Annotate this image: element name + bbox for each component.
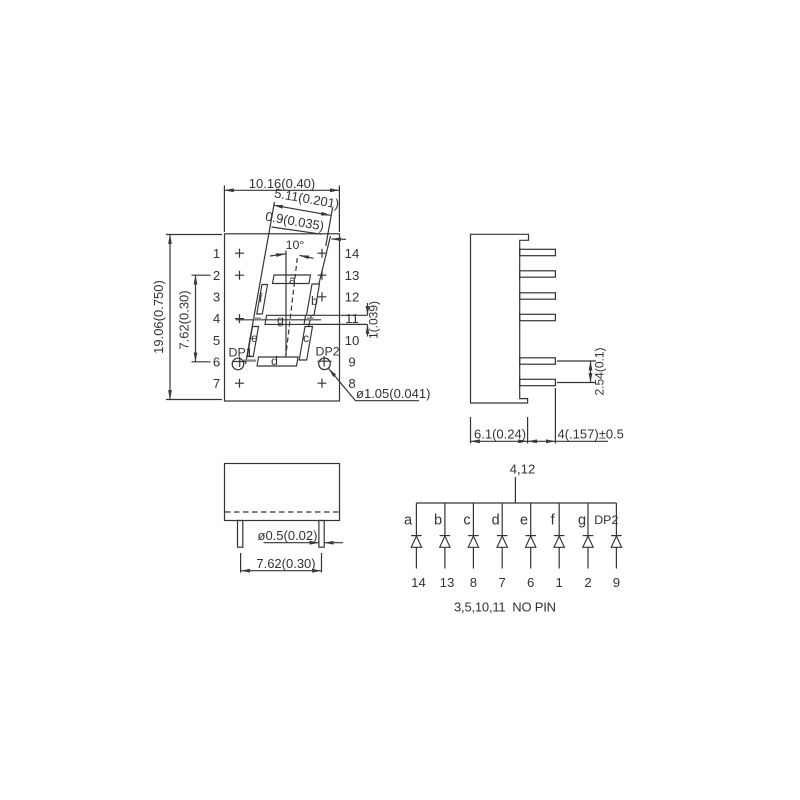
svg-text:12: 12 xyxy=(345,289,360,304)
svg-text:4(.157)±0.5: 4(.157)±0.5 xyxy=(558,427,624,442)
svg-text:13: 13 xyxy=(440,575,455,590)
svg-text:7.62(0.30): 7.62(0.30) xyxy=(177,290,192,349)
svg-text:1: 1 xyxy=(556,575,563,590)
svg-text:3: 3 xyxy=(213,289,220,304)
svg-text:6.1(0.24): 6.1(0.24) xyxy=(474,427,526,442)
svg-text:14: 14 xyxy=(345,246,360,261)
svg-text:1(.039): 1(.039) xyxy=(367,301,381,339)
svg-text:10°: 10° xyxy=(286,238,305,252)
svg-text:6: 6 xyxy=(527,575,534,590)
svg-text:d: d xyxy=(271,354,278,368)
svg-text:19.06(0.750): 19.06(0.750) xyxy=(151,280,166,354)
svg-text:e: e xyxy=(520,513,528,529)
svg-text:b: b xyxy=(311,294,318,308)
svg-text:1: 1 xyxy=(213,246,220,261)
svg-text:DP2: DP2 xyxy=(594,513,618,527)
svg-text:7: 7 xyxy=(499,575,506,590)
svg-text:DP2: DP2 xyxy=(316,345,340,359)
svg-text:2.54(0.1): 2.54(0.1) xyxy=(593,347,607,395)
svg-text:10: 10 xyxy=(345,333,360,348)
svg-text:e: e xyxy=(251,331,258,345)
svg-text:g: g xyxy=(578,513,586,529)
svg-text:9: 9 xyxy=(613,575,620,590)
svg-text:ø1.05(0.041): ø1.05(0.041) xyxy=(356,386,430,401)
svg-text:7: 7 xyxy=(213,376,220,391)
svg-text:f: f xyxy=(259,291,263,305)
svg-text:c: c xyxy=(463,513,470,529)
svg-text:b: b xyxy=(434,513,442,529)
svg-text:a: a xyxy=(404,513,413,529)
svg-text:6: 6 xyxy=(213,354,220,369)
svg-text:4,12: 4,12 xyxy=(510,461,536,476)
svg-text:14: 14 xyxy=(411,575,426,590)
svg-text:2: 2 xyxy=(584,575,591,590)
svg-text:ø0.5(0.02): ø0.5(0.02) xyxy=(258,528,318,543)
svg-text:13: 13 xyxy=(345,268,360,283)
svg-text:f: f xyxy=(551,513,556,529)
svg-text:8: 8 xyxy=(470,575,477,590)
svg-text:2: 2 xyxy=(213,268,220,283)
svg-text:8: 8 xyxy=(348,376,355,391)
svg-text:DP1: DP1 xyxy=(229,346,253,360)
svg-text:5: 5 xyxy=(213,333,220,348)
svg-text:d: d xyxy=(492,513,500,529)
svg-text:3,5,10,11 NO PIN: 3,5,10,11 NO PIN xyxy=(454,600,556,615)
svg-text:7.62(0.30): 7.62(0.30) xyxy=(256,556,315,571)
svg-text:4: 4 xyxy=(213,311,220,326)
svg-text:c: c xyxy=(303,331,309,345)
svg-text:9: 9 xyxy=(348,354,355,369)
